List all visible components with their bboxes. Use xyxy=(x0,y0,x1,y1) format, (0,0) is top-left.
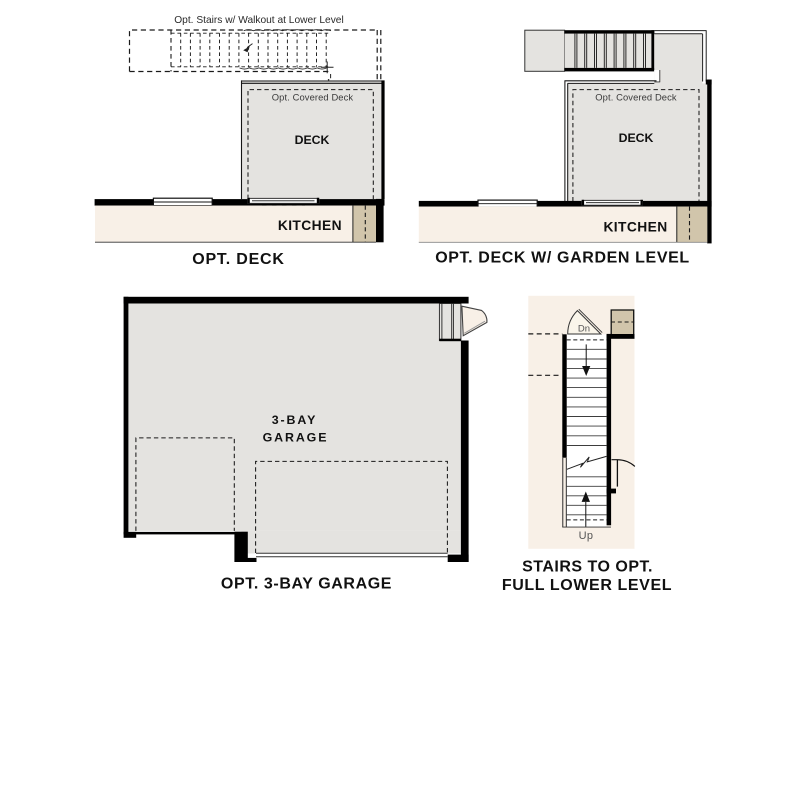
svg-text:GARAGE: GARAGE xyxy=(263,430,329,444)
svg-text:KITCHEN: KITCHEN xyxy=(603,219,667,234)
svg-text:OPT. DECK: OPT. DECK xyxy=(192,251,285,268)
svg-text:3-BAY: 3-BAY xyxy=(272,413,318,427)
svg-text:Opt. Covered Deck: Opt. Covered Deck xyxy=(595,91,677,102)
svg-text:FULL LOWER LEVEL: FULL LOWER LEVEL xyxy=(502,577,672,594)
svg-text:OPT. DECK W/ GARDEN LEVEL: OPT. DECK W/ GARDEN LEVEL xyxy=(435,249,690,266)
svg-text:DECK: DECK xyxy=(295,133,330,147)
svg-text:OPT. 3-BAY GARAGE: OPT. 3-BAY GARAGE xyxy=(221,576,392,593)
svg-text:Dn: Dn xyxy=(578,324,590,335)
svg-text:KITCHEN: KITCHEN xyxy=(278,218,342,233)
svg-text:Opt. Covered Deck: Opt. Covered Deck xyxy=(272,91,354,102)
svg-text:Opt. Stairs w/ Walkout at Lowe: Opt. Stairs w/ Walkout at Lower Level xyxy=(174,15,343,26)
svg-text:Up: Up xyxy=(579,530,594,542)
svg-text:DECK: DECK xyxy=(619,131,654,145)
svg-text:STAIRS TO OPT.: STAIRS TO OPT. xyxy=(522,559,653,576)
